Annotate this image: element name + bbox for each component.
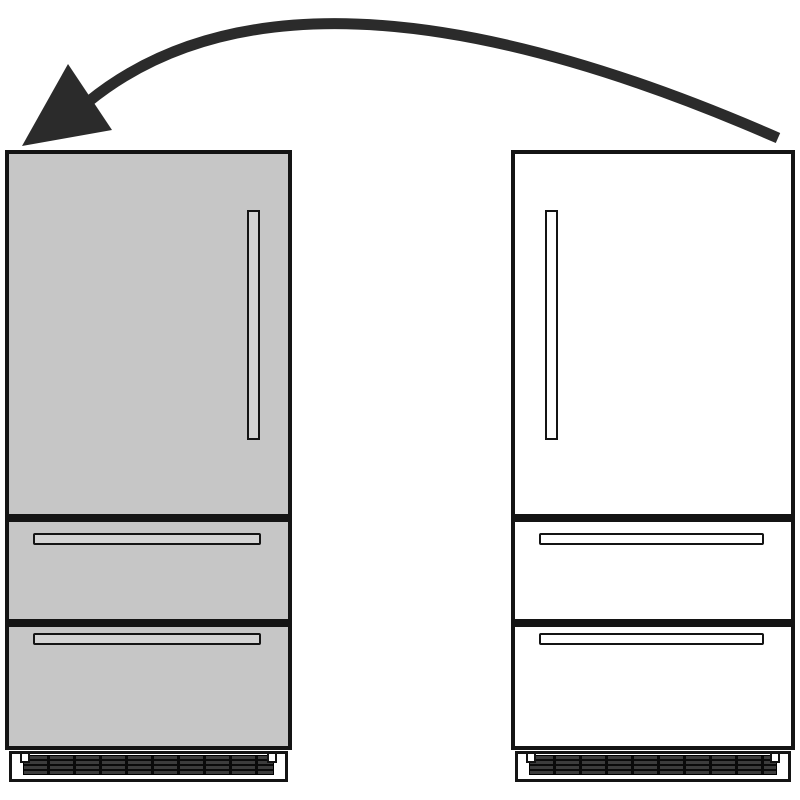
door-handle-icon (247, 210, 260, 440)
swap-arrow-curve (88, 24, 778, 138)
drawer-handle-icon (33, 533, 261, 545)
fridge-door (5, 150, 292, 518)
grille-slats-icon (529, 755, 777, 775)
drawer-handle-icon (33, 633, 261, 645)
grille-corner-notch (267, 754, 277, 763)
drawer-handle-icon (539, 533, 764, 545)
grille-corner-notch (770, 754, 780, 763)
swap-arrow-head (22, 64, 112, 146)
ventilation-grille (515, 751, 791, 782)
refrigerator-right-plain (511, 150, 795, 782)
freezer-drawer-lower (5, 623, 292, 750)
drawer-handle-icon (539, 633, 764, 645)
grille-corner-notch (20, 754, 30, 763)
ventilation-grille (9, 751, 288, 782)
diagram-canvas (0, 0, 800, 800)
swap-arrow-icon (0, 0, 800, 170)
fridge-door (511, 150, 795, 518)
freezer-drawer-upper (5, 518, 292, 623)
door-handle-icon (545, 210, 558, 440)
refrigerator-left-highlighted (5, 150, 292, 782)
grille-slats-icon (23, 755, 274, 775)
grille-corner-notch (526, 754, 536, 763)
freezer-drawer-upper (511, 518, 795, 623)
freezer-drawer-lower (511, 623, 795, 750)
